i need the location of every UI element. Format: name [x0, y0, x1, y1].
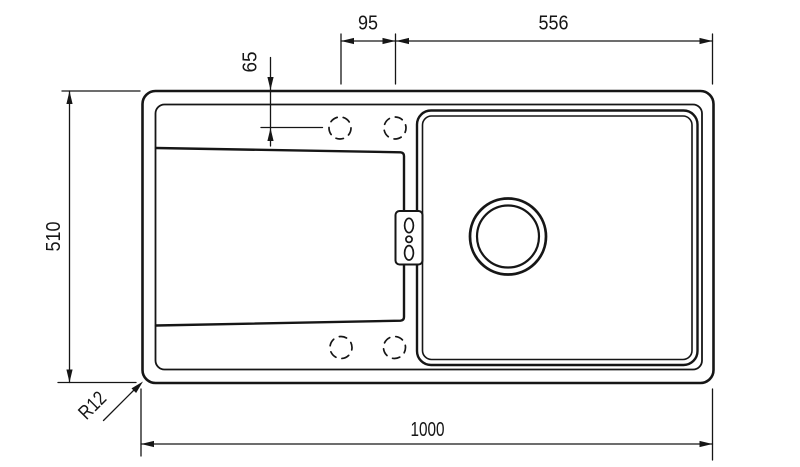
arrowhead	[66, 91, 72, 104]
dimension-label-1000: 1000	[411, 419, 445, 441]
technical-drawing-page: 95 556 65 510	[0, 0, 800, 467]
arrowhead	[341, 38, 354, 44]
dimension-overall-length: 1000	[141, 389, 713, 460]
bowl-outer-edge	[417, 111, 698, 366]
tap-hole-bottom-right	[384, 337, 406, 359]
dimension-label-65: 65	[240, 52, 262, 73]
dimension-corner-radius: R12	[74, 382, 143, 425]
dimension-label-95: 95	[358, 13, 378, 35]
arrowhead	[141, 441, 154, 447]
drain	[470, 199, 546, 275]
sink-dimension-drawing: 95 556 65 510	[0, 0, 800, 467]
dimension-overall-depth: 510	[43, 91, 140, 383]
arrowhead	[396, 38, 409, 44]
bowl-inner-edge	[423, 116, 693, 360]
drain-inner-circle	[477, 206, 539, 268]
drainboard-outline	[156, 148, 404, 326]
sink-body	[143, 91, 714, 383]
drain-outer-circle	[470, 199, 546, 275]
tap-hole-top-right	[384, 117, 406, 139]
arrowhead	[700, 441, 713, 447]
arrowhead	[267, 77, 273, 90]
dimension-tap-hole-spacing: 95	[341, 13, 713, 85]
arrowhead	[267, 128, 273, 141]
sink-inner-rim	[156, 105, 703, 370]
dimension-label-510: 510	[43, 222, 65, 252]
arrowhead	[700, 38, 713, 44]
dimension-bowl-width: 556	[396, 13, 713, 85]
dimension-label-556: 556	[539, 13, 569, 35]
dimension-tap-hole-offset: 65	[240, 52, 323, 147]
arrowhead	[383, 38, 396, 44]
tap-hole-top-left	[329, 117, 351, 139]
arrowhead	[66, 370, 72, 383]
tap-hole-bottom-left	[330, 337, 352, 359]
overflow-fitting	[396, 211, 423, 265]
sink-outer-edge	[143, 91, 714, 383]
